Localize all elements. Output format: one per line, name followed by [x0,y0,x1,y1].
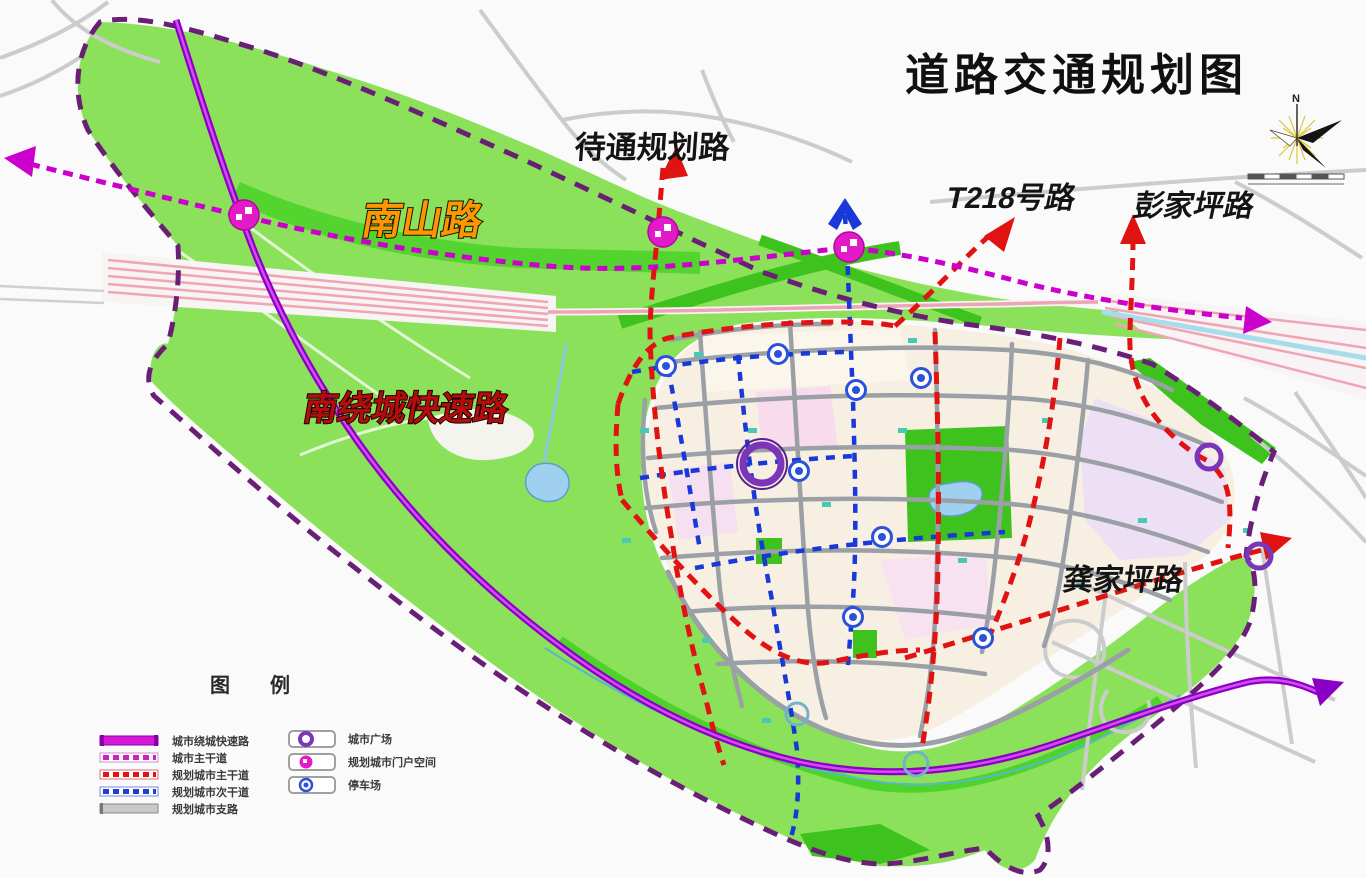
legend-swatch-branch-road [100,803,158,814]
legend-label: 规划城市主干道 [172,768,249,782]
legend-swatch-parking [289,777,335,793]
legend-label: 城市绕城快速路 [172,734,250,748]
label-nanshan-road: 南山路 [358,198,487,243]
legend-swatch-gateway-node [289,754,335,770]
scale-bar [1248,174,1344,184]
legend-label: 停车场 [348,778,381,792]
blue-direction-arrow [828,198,862,230]
legend-swatch-planned-secondary [100,787,158,796]
label-pengjiaping-road: 彭家坪路 [1131,189,1259,223]
label-t218-road: T218号路 [944,181,1080,215]
legend-swatch-city-square [289,731,335,747]
legend-swatch-planned-arterial [100,770,158,779]
legend-label: 规划城市次干道 [172,785,249,799]
compass-north-label: N [1292,93,1300,105]
expressway-arrow [1312,678,1344,706]
page-title: 道路交通规划图 [905,51,1248,100]
map-canvas: 道路交通规划图 待通规划路 南山路 T218号路 彭家坪路 南绕城快速路 龚家坪… [0,0,1366,878]
legend-label: 城市主干道 [172,751,227,765]
legend-swatch-expressway [100,735,158,746]
legend-title: 图例 [210,673,330,697]
label-south-ring-expressway: 南绕城快速路 [301,390,512,428]
legend-swatch-arterial [100,753,158,762]
compass-rose: N [1270,93,1342,168]
legend-label: 规划城市门户空间 [348,755,436,769]
legend: 图例 城市绕城快速路 城市主干道 规划城市主干道 规划城市次干道 规划城市支路 [100,673,436,816]
legend-label: 城市广场 [348,732,392,746]
label-pending-planned-road: 待通规划路 [574,130,732,165]
label-gongjiaping-road: 龚家坪路 [1061,563,1187,597]
road-traffic-planning-map: 道路交通规划图 待通规划路 南山路 T218号路 彭家坪路 南绕城快速路 龚家坪… [0,0,1366,878]
legend-label: 规划城市支路 [172,802,239,816]
